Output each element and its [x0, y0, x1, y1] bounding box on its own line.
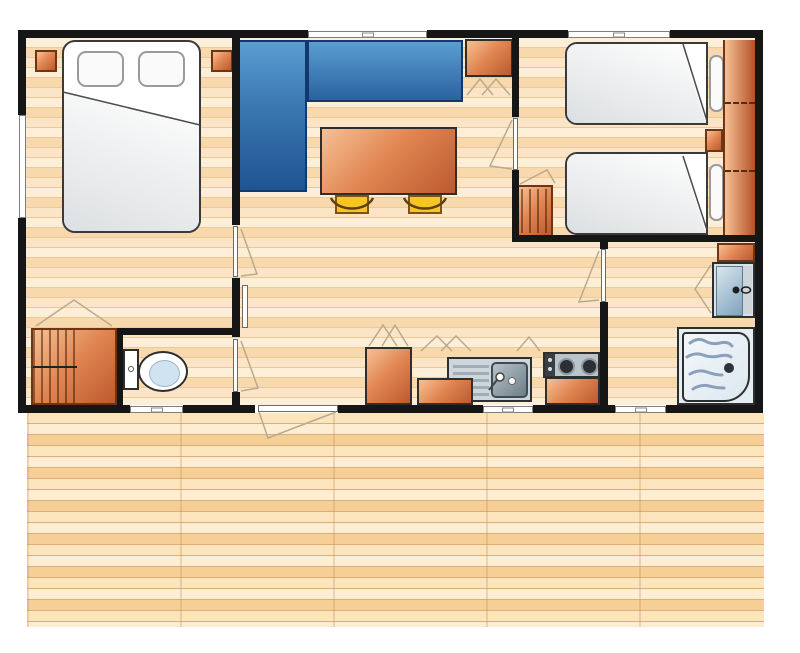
single-bed — [565, 42, 708, 125]
hanging-cabinet — [517, 185, 553, 237]
window-kitchen — [483, 406, 533, 413]
basin — [716, 266, 743, 316]
burner — [558, 358, 575, 375]
door-bedroom1-open — [242, 285, 248, 328]
wall-left — [18, 30, 26, 115]
wall-bottom — [533, 405, 615, 413]
burner — [581, 358, 598, 375]
door-bedroom2 — [513, 118, 518, 170]
dining-table — [320, 127, 457, 195]
single-bed — [565, 152, 708, 235]
shower-tray — [677, 327, 755, 405]
window-living — [308, 31, 427, 38]
sink-basin — [491, 362, 528, 398]
bed-sheet — [567, 44, 706, 123]
hanging-clothes — [521, 189, 549, 233]
stool — [335, 195, 369, 214]
window-bedroom2 — [568, 31, 670, 38]
wall-shower — [600, 302, 608, 405]
pillow — [138, 51, 185, 87]
window-bedroom1 — [19, 115, 26, 218]
washbasin — [712, 262, 755, 318]
wardrobe-shelf-line — [725, 170, 755, 172]
terrace-deck — [27, 413, 764, 627]
door-shower — [601, 249, 606, 302]
door-main-entrance — [258, 405, 338, 412]
wall-bedroom2-bottom — [512, 235, 763, 242]
stove-controls — [545, 354, 555, 376]
pillow — [77, 51, 124, 87]
kitchen-tall-cabinet — [365, 347, 412, 405]
toilet-bowl-inner — [149, 360, 180, 387]
wall-left — [18, 218, 26, 413]
living-cabinet — [465, 39, 513, 77]
corner-sofa-left — [237, 40, 307, 192]
wall-right — [755, 30, 763, 413]
wall-bottom — [18, 405, 130, 413]
hanging-wardrobe — [31, 328, 117, 405]
stove — [543, 352, 600, 378]
wall-bedroom1 — [232, 392, 240, 405]
window-wc — [130, 406, 183, 413]
wall-bottom — [183, 405, 255, 413]
wardrobe — [723, 40, 755, 238]
wall-top — [18, 30, 308, 38]
wall-wc-top — [117, 328, 240, 335]
pillow — [709, 164, 724, 221]
nightstand — [35, 50, 57, 72]
wall-bottom — [338, 405, 483, 413]
wall-shower — [600, 242, 608, 249]
kitchen-counter — [417, 378, 473, 405]
corner-sofa-top — [307, 40, 463, 102]
nightstand — [211, 50, 233, 72]
toilet-tank — [123, 349, 139, 390]
wardrobe-rail — [33, 366, 77, 368]
stool — [408, 195, 442, 214]
wall-bedroom1 — [232, 38, 240, 225]
toilet-bowl — [138, 351, 188, 392]
wall-bottom — [666, 405, 763, 413]
double-bed — [62, 40, 201, 233]
door-wc — [233, 339, 238, 392]
wall-bedroom2 — [512, 170, 519, 242]
pillow — [709, 55, 724, 112]
bed-sheet — [64, 92, 199, 233]
bed-sheet — [567, 154, 706, 233]
floor-plan — [0, 0, 800, 653]
shower-tray-rim — [682, 332, 750, 402]
wall-top — [670, 30, 763, 38]
wall-top — [427, 30, 568, 38]
knob — [548, 367, 552, 371]
door-bedroom1 — [233, 226, 238, 277]
kitchen-counter — [545, 377, 600, 405]
shower-cabinet — [717, 243, 755, 262]
nightstand — [705, 129, 723, 152]
basin-side-panel — [743, 266, 752, 314]
wall-wc-left — [117, 335, 123, 405]
knob — [548, 358, 552, 362]
window-shower — [615, 406, 666, 413]
wall-bedroom2 — [512, 38, 519, 117]
wardrobe-shelf-line — [725, 102, 755, 104]
